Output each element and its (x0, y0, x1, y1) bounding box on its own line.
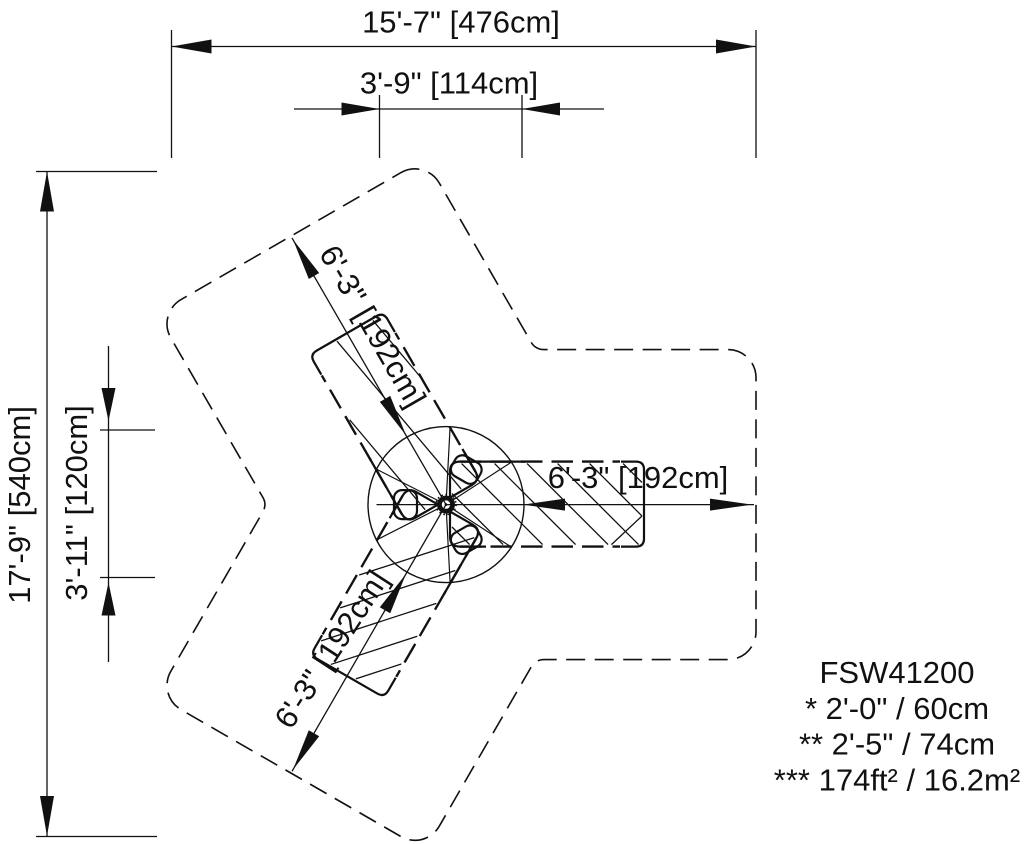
svg-text:15'-7" [476cm]: 15'-7" [476cm] (362, 5, 560, 40)
svg-text:3'-11" [120cm]: 3'-11" [120cm] (59, 405, 94, 601)
svg-text:*** 174ft² / 16.2m²: *** 174ft² / 16.2m² (774, 763, 1020, 798)
svg-text:** 2'-5" / 74cm: ** 2'-5" / 74cm (799, 727, 995, 762)
svg-text:FSW41200: FSW41200 (819, 655, 974, 690)
svg-text:3'-9" [114cm]: 3'-9" [114cm] (360, 66, 538, 101)
svg-text:6'-3" [192cm]: 6'-3" [192cm] (548, 460, 729, 495)
svg-text:17'-9" [540cm]: 17'-9" [540cm] (2, 406, 37, 604)
svg-text:* 2'-0" / 60cm: * 2'-0" / 60cm (805, 691, 989, 726)
svg-text:6'-3" [192cm]: 6'-3" [192cm] (312, 239, 433, 413)
